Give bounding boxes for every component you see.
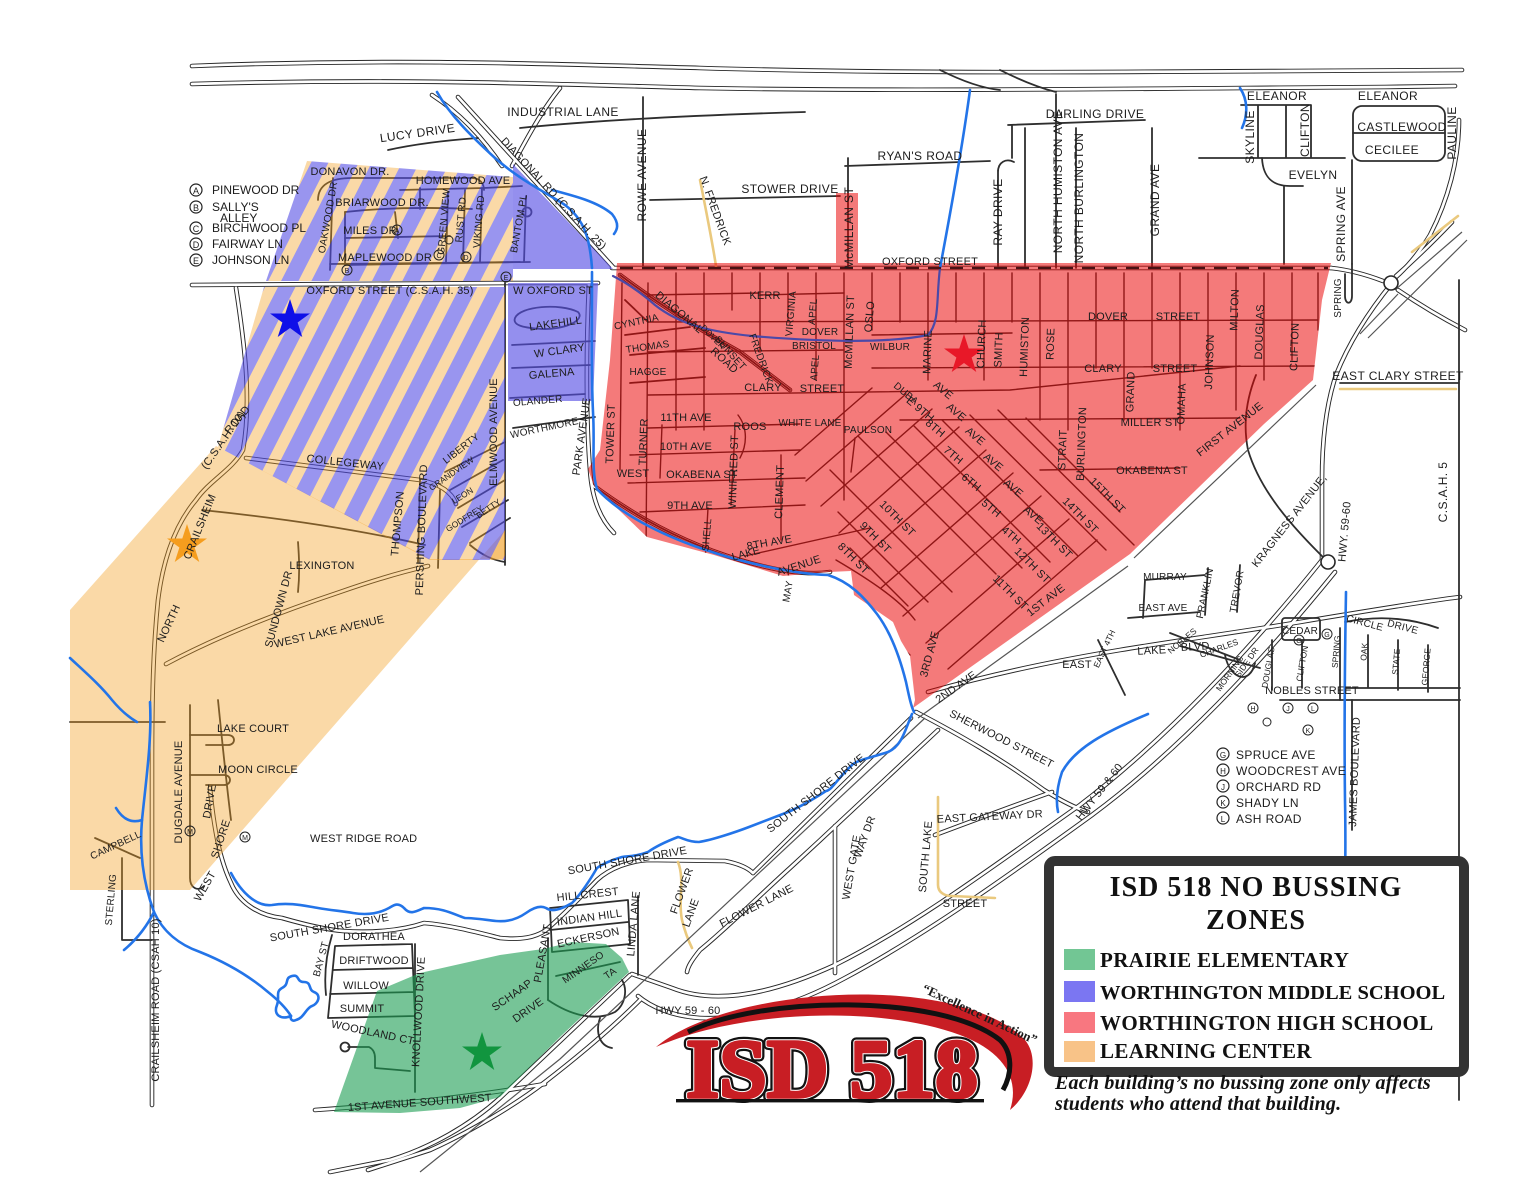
svg-text:MILTON: MILTON bbox=[1228, 289, 1241, 331]
svg-text:B: B bbox=[345, 268, 350, 275]
svg-text:WOODCREST AVE: WOODCREST AVE bbox=[1236, 764, 1346, 778]
svg-text:DRIFTWOOD: DRIFTWOOD bbox=[339, 955, 409, 967]
svg-text:STOWER DRIVE: STOWER DRIVE bbox=[741, 182, 838, 196]
svg-text:WILBUR: WILBUR bbox=[870, 342, 910, 353]
svg-text:E: E bbox=[504, 275, 509, 282]
svg-text:BIRCHWOOD PL: BIRCHWOOD PL bbox=[212, 221, 306, 235]
svg-text:BRIARWOOD DR.: BRIARWOOD DR. bbox=[335, 197, 428, 209]
svg-text:CLARY: CLARY bbox=[1084, 363, 1122, 375]
svg-text:STREET: STREET bbox=[800, 383, 845, 395]
svg-text:ROOS: ROOS bbox=[733, 421, 766, 433]
svg-text:G: G bbox=[1220, 751, 1226, 760]
svg-text:H: H bbox=[1250, 706, 1255, 713]
svg-text:K: K bbox=[1306, 728, 1311, 735]
svg-text:GRAND AVE: GRAND AVE bbox=[1148, 164, 1162, 237]
svg-text:ORCHARD RD: ORCHARD RD bbox=[1236, 780, 1321, 794]
svg-text:BRISTOL: BRISTOL bbox=[792, 341, 836, 352]
svg-text:WORTHINGTON MIDDLE SCHOOL: WORTHINGTON MIDDLE SCHOOL bbox=[1100, 982, 1445, 1004]
svg-text:G: G bbox=[1296, 638, 1301, 645]
svg-text:SPRING AVE: SPRING AVE bbox=[1334, 186, 1348, 262]
svg-text:DONAVON DR.: DONAVON DR. bbox=[310, 166, 389, 178]
svg-text:ISD 518 NO BUSSING: ISD 518 NO BUSSING bbox=[1110, 872, 1403, 903]
svg-text:M: M bbox=[187, 829, 193, 836]
svg-text:CHURCH: CHURCH bbox=[975, 319, 989, 368]
svg-text:A: A bbox=[395, 228, 400, 235]
svg-text:ROSE: ROSE bbox=[1044, 328, 1057, 360]
svg-text:DUGDALE AVENUE: DUGDALE AVENUE bbox=[173, 741, 185, 844]
svg-text:C.S.A.H. 5: C.S.A.H. 5 bbox=[1436, 462, 1450, 523]
svg-text:LAKE COURT: LAKE COURT bbox=[217, 723, 289, 735]
svg-text:NORTH HUMISTON AVE: NORTH HUMISTON AVE bbox=[1051, 111, 1065, 254]
svg-text:FAIRWAY LN: FAIRWAY LN bbox=[212, 237, 283, 251]
svg-text:STREET: STREET bbox=[1153, 363, 1198, 375]
svg-text:HAGGE: HAGGE bbox=[629, 367, 666, 378]
svg-text:students who attend that build: students who attend that building. bbox=[1054, 1093, 1341, 1115]
svg-text:JOHNSON: JOHNSON bbox=[1203, 334, 1217, 390]
svg-text:CLARY: CLARY bbox=[744, 382, 782, 394]
svg-text:OMAHA: OMAHA bbox=[1175, 383, 1188, 425]
svg-text:DOUGLAS: DOUGLAS bbox=[1253, 304, 1267, 360]
svg-text:EAST AVE: EAST AVE bbox=[1138, 603, 1187, 614]
svg-text:INDUSTRIAL LANE: INDUSTRIAL LANE bbox=[507, 105, 619, 119]
svg-text:CLIFTON: CLIFTON bbox=[1298, 103, 1312, 157]
svg-text:CRAILSHEIM ROAD (CSAH 10): CRAILSHEIM ROAD (CSAH 10) bbox=[150, 918, 162, 1081]
svg-text:GRAND: GRAND bbox=[1124, 371, 1137, 412]
svg-text:MARINE: MARINE bbox=[921, 330, 935, 374]
svg-text:ASH ROAD: ASH ROAD bbox=[1236, 812, 1302, 826]
svg-text:SHADY LN: SHADY LN bbox=[1236, 796, 1299, 810]
svg-text:PINEWOOD DR: PINEWOOD DR bbox=[212, 183, 300, 197]
svg-text:DOVER: DOVER bbox=[1088, 311, 1128, 323]
svg-text:E: E bbox=[193, 256, 199, 266]
svg-text:Each building’s no bussing zon: Each building’s no bussing zone only aff… bbox=[1054, 1072, 1431, 1094]
svg-text:STREET: STREET bbox=[943, 898, 988, 910]
svg-text:PAULINE: PAULINE bbox=[1445, 106, 1459, 159]
svg-text:WEST RIDGE ROAD: WEST RIDGE ROAD bbox=[310, 833, 417, 845]
svg-text:HUMISTON: HUMISTON bbox=[1018, 317, 1032, 377]
svg-text:10TH AVE: 10TH AVE bbox=[660, 441, 712, 453]
svg-text:J: J bbox=[1221, 783, 1225, 792]
svg-text:A: A bbox=[193, 186, 199, 196]
svg-text:MAPLEWOOD DR: MAPLEWOOD DR bbox=[338, 252, 432, 264]
svg-text:RYAN'S ROAD: RYAN'S ROAD bbox=[878, 149, 963, 163]
svg-text:L: L bbox=[1221, 815, 1226, 824]
svg-text:EAST CLARY STREET: EAST CLARY STREET bbox=[1332, 369, 1464, 383]
svg-text:L: L bbox=[1311, 706, 1315, 713]
svg-text:WORTHINGTON HIGH SCHOOL: WORTHINGTON HIGH SCHOOL bbox=[1100, 1011, 1434, 1035]
svg-text:C: C bbox=[193, 224, 200, 234]
svg-text:TURNER: TURNER bbox=[637, 418, 651, 465]
svg-text:K: K bbox=[1220, 799, 1226, 808]
svg-text:MILLER ST: MILLER ST bbox=[1121, 417, 1180, 429]
svg-text:DOVER: DOVER bbox=[802, 327, 839, 338]
svg-text:SKYLINE: SKYLINE bbox=[1243, 110, 1257, 164]
svg-text:LEARNING CENTER: LEARNING CENTER bbox=[1100, 1039, 1312, 1063]
svg-text:LEXINGTON: LEXINGTON bbox=[289, 560, 354, 572]
svg-text:MILES DR: MILES DR bbox=[343, 225, 397, 237]
svg-text:J: J bbox=[1286, 706, 1290, 713]
svg-text:CECILEE: CECILEE bbox=[1365, 143, 1419, 157]
svg-text:NOBLES STREET: NOBLES STREET bbox=[1265, 685, 1359, 697]
svg-text:M: M bbox=[242, 835, 248, 842]
svg-text:MOON CIRCLE: MOON CIRCLE bbox=[218, 764, 298, 776]
svg-text:WILLOW: WILLOW bbox=[343, 980, 389, 992]
svg-text:McMILLAN ST: McMILLAN ST bbox=[842, 187, 856, 270]
svg-text:RAY DRIVE: RAY DRIVE bbox=[991, 178, 1005, 245]
svg-text:PRAIRIE ELEMENTARY: PRAIRIE ELEMENTARY bbox=[1100, 948, 1349, 972]
svg-text:OAK: OAK bbox=[1358, 642, 1370, 661]
svg-text:ZONES: ZONES bbox=[1206, 905, 1306, 936]
svg-text:SUMMIT: SUMMIT bbox=[340, 1003, 385, 1015]
svg-text:WEST: WEST bbox=[617, 468, 650, 480]
svg-text:EAST: EAST bbox=[1062, 659, 1092, 671]
svg-text:CLEMENT: CLEMENT bbox=[773, 465, 787, 519]
svg-text:OKABENA ST: OKABENA ST bbox=[1116, 465, 1188, 477]
svg-text:W OXFORD ST: W OXFORD ST bbox=[513, 285, 593, 297]
svg-text:HOMEWOOD AVE: HOMEWOOD AVE bbox=[416, 175, 510, 187]
svg-text:LAKE: LAKE bbox=[1137, 644, 1167, 657]
svg-text:CLIFTON: CLIFTON bbox=[1288, 323, 1302, 372]
svg-text:APEL: APEL bbox=[807, 298, 820, 325]
svg-text:G: G bbox=[1324, 632, 1329, 639]
svg-text:MURRAY: MURRAY bbox=[1143, 572, 1187, 583]
svg-text:SPRUCE AVE: SPRUCE AVE bbox=[1236, 748, 1316, 762]
svg-text:H: H bbox=[1220, 767, 1226, 776]
svg-text:APEL: APEL bbox=[809, 354, 822, 381]
svg-text:11TH AVE: 11TH AVE bbox=[660, 412, 711, 424]
svg-text:JOHNSON LN: JOHNSON LN bbox=[212, 253, 289, 267]
svg-text:NORTH BURLINGTON: NORTH BURLINGTON bbox=[1072, 133, 1086, 264]
svg-text:B: B bbox=[193, 203, 199, 213]
svg-text:HWY 59 - 60: HWY 59 - 60 bbox=[656, 1005, 721, 1017]
svg-text:EVELYN: EVELYN bbox=[1289, 168, 1338, 182]
svg-text:ELEANOR: ELEANOR bbox=[1358, 89, 1418, 103]
svg-text:CASTLEWOOD: CASTLEWOOD bbox=[1357, 120, 1446, 134]
svg-text:ELMWOOD AVENUE: ELMWOOD AVENUE bbox=[488, 378, 500, 486]
svg-text:STRAIT: STRAIT bbox=[1056, 429, 1069, 470]
svg-text:ELEANOR: ELEANOR bbox=[1247, 89, 1307, 103]
svg-text:OXFORD STREET (C.S.A.H. 35): OXFORD STREET (C.S.A.H. 35) bbox=[306, 285, 473, 297]
svg-text:DORATHEA: DORATHEA bbox=[343, 931, 405, 943]
svg-text:D: D bbox=[463, 255, 468, 262]
svg-text:OXFORD STREET: OXFORD STREET bbox=[882, 256, 978, 268]
svg-text:PAULSON: PAULSON bbox=[844, 425, 892, 436]
svg-text:SMITH: SMITH bbox=[992, 332, 1005, 368]
svg-text:STREET: STREET bbox=[1156, 311, 1201, 323]
svg-text:KERR: KERR bbox=[749, 290, 780, 302]
svg-text:9TH AVE: 9TH AVE bbox=[667, 500, 713, 512]
svg-text:ROWE AVENUE: ROWE AVENUE bbox=[635, 129, 649, 222]
svg-text:TOWER ST: TOWER ST bbox=[604, 404, 618, 464]
svg-text:SPRING: SPRING bbox=[1333, 278, 1344, 318]
svg-text:WHITE LANE: WHITE LANE bbox=[778, 418, 841, 429]
svg-text:D: D bbox=[193, 240, 200, 250]
